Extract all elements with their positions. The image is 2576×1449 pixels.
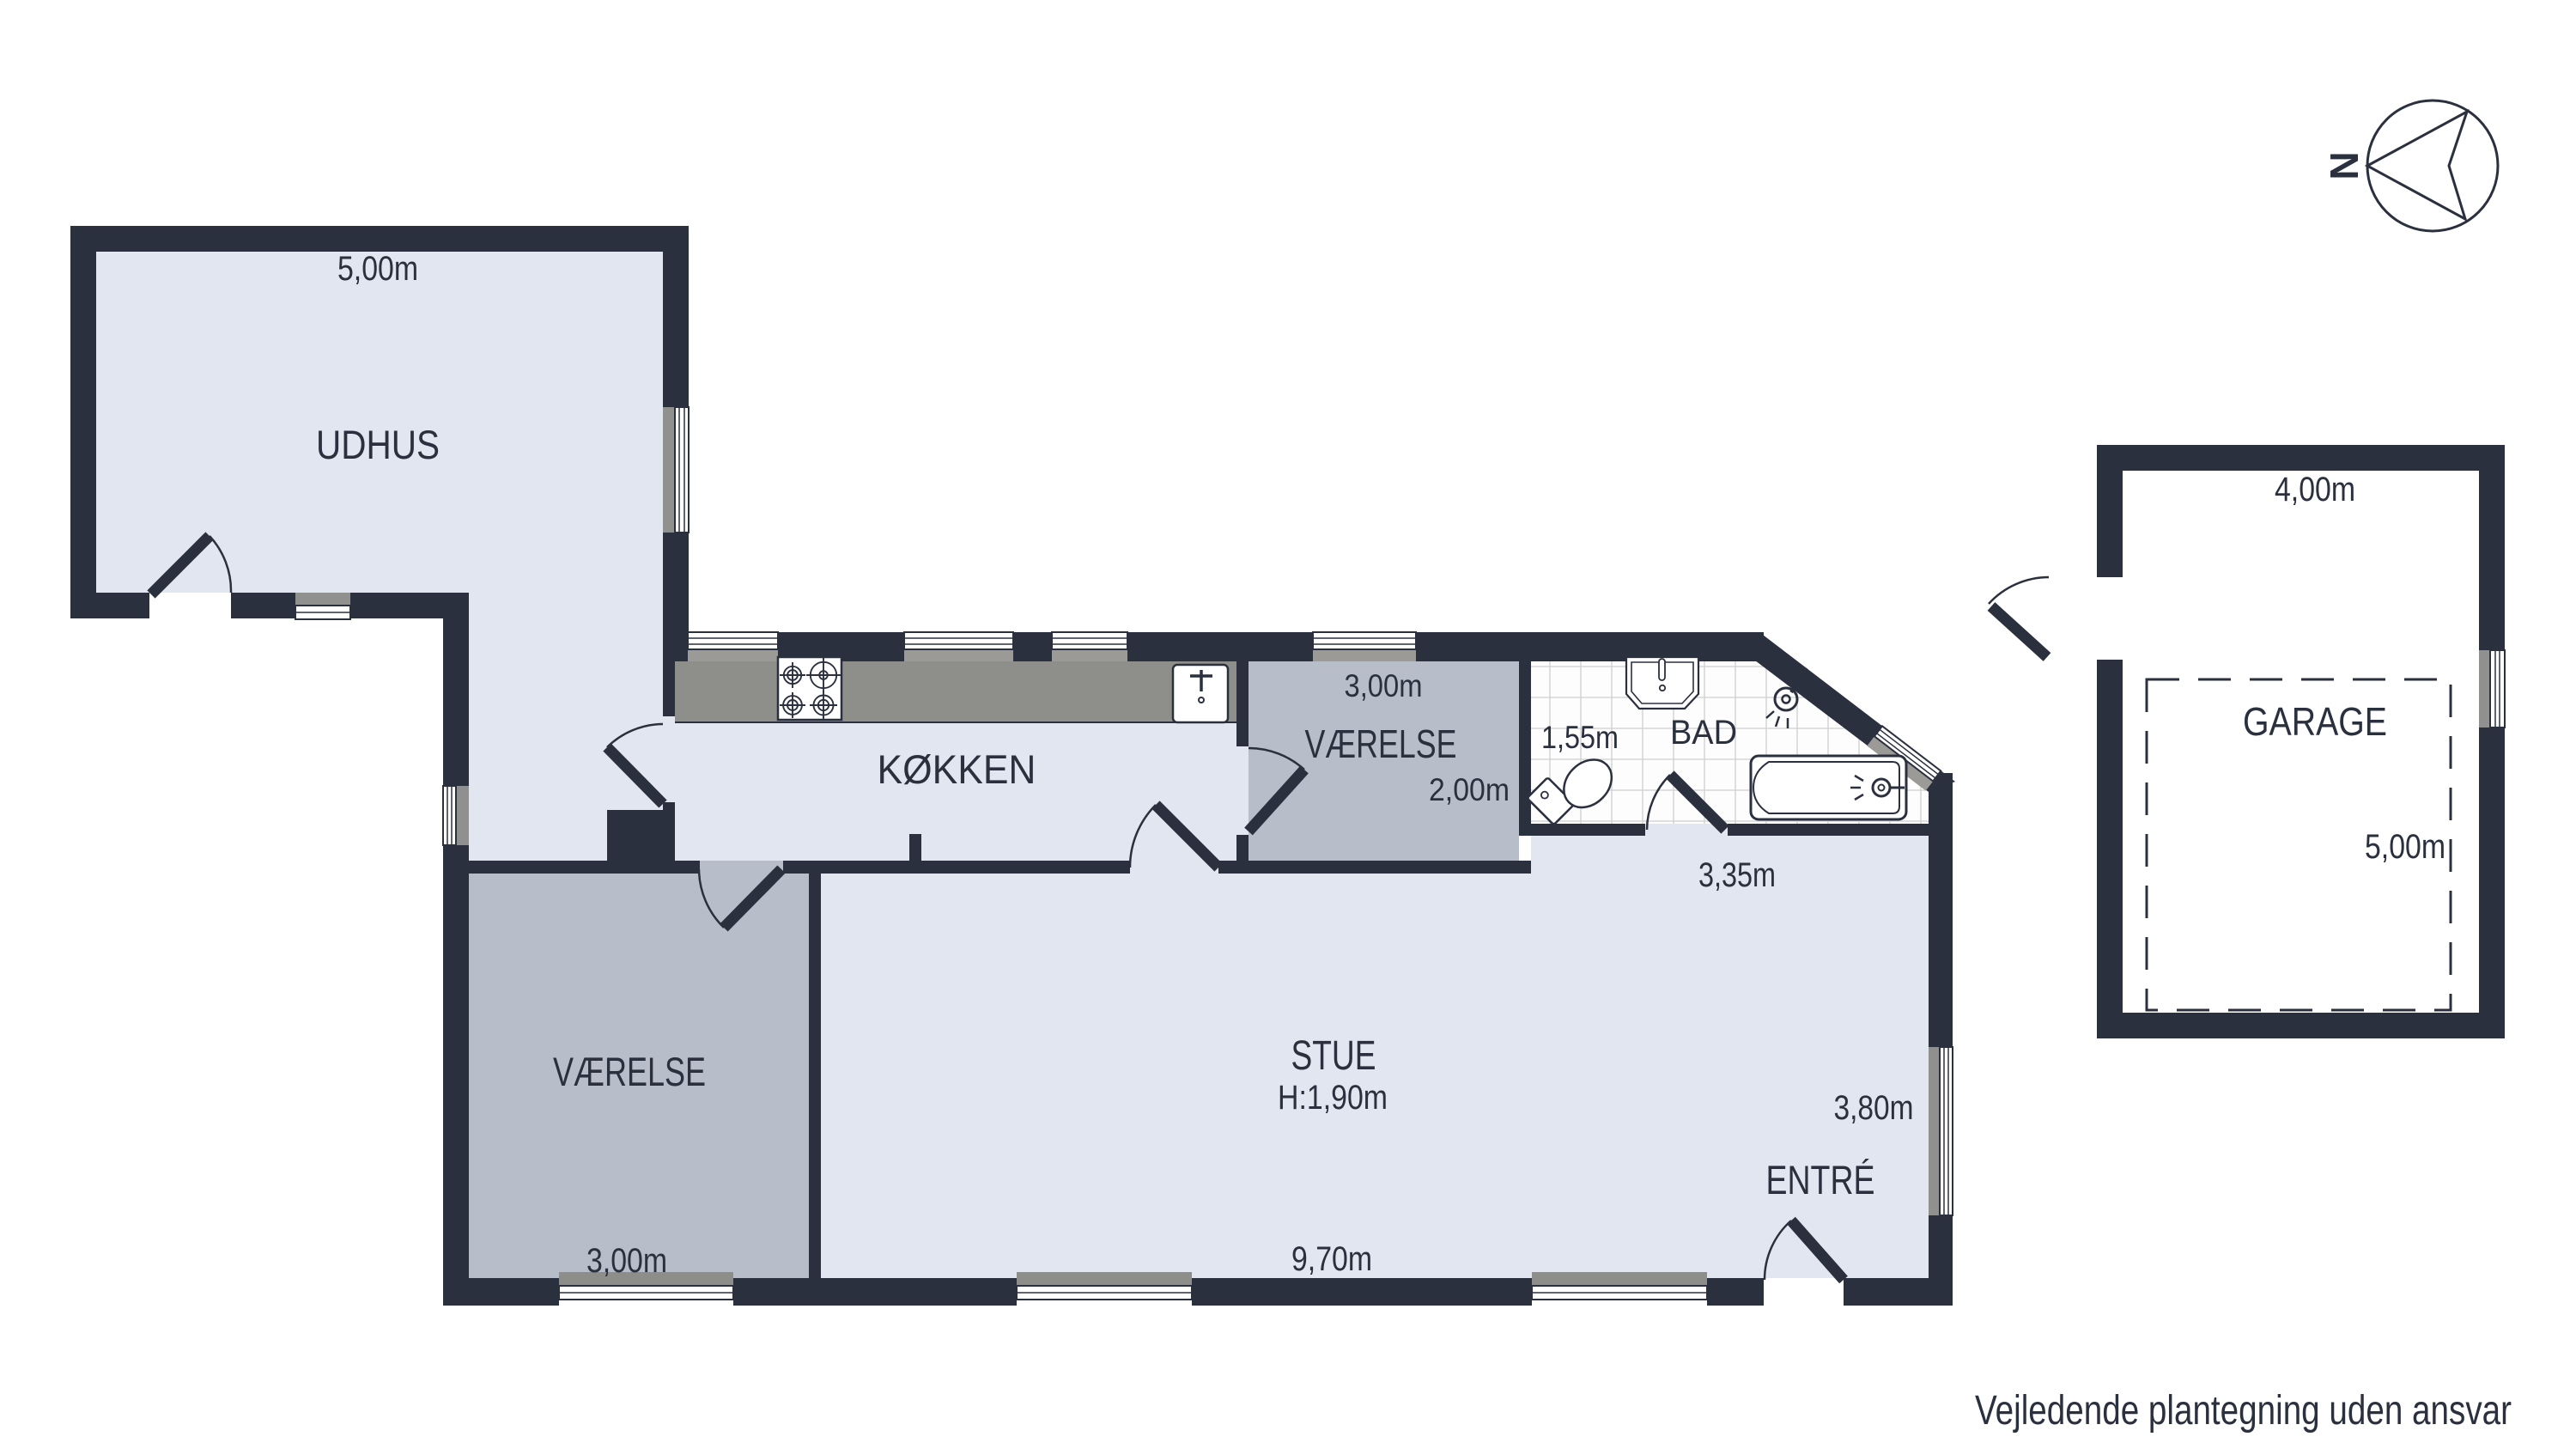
svg-text:1,55m: 1,55m bbox=[1541, 720, 1619, 755]
svg-text:N: N bbox=[2322, 151, 2366, 180]
svg-text:9,70m: 9,70m bbox=[1291, 1240, 1372, 1278]
svg-text:VÆRELSE: VÆRELSE bbox=[1305, 721, 1457, 766]
svg-text:GARAGE: GARAGE bbox=[2243, 699, 2387, 744]
svg-text:BAD: BAD bbox=[1670, 714, 1737, 752]
svg-text:5,00m: 5,00m bbox=[337, 250, 418, 288]
svg-text:KØKKEN: KØKKEN bbox=[878, 746, 1036, 792]
svg-text:STUE: STUE bbox=[1291, 1033, 1376, 1079]
svg-text:H:1,90m: H:1,90m bbox=[1278, 1079, 1388, 1117]
svg-text:ENTRÉ: ENTRÉ bbox=[1766, 1157, 1875, 1202]
svg-text:UDHUS: UDHUS bbox=[316, 422, 440, 467]
svg-text:3,00m: 3,00m bbox=[1345, 668, 1423, 703]
svg-text:5,00m: 5,00m bbox=[2365, 828, 2445, 866]
svg-text:4,00m: 4,00m bbox=[2275, 471, 2355, 508]
svg-text:2,00m: 2,00m bbox=[1429, 772, 1510, 807]
svg-text:3,80m: 3,80m bbox=[1834, 1089, 1914, 1127]
svg-text:VÆRELSE: VÆRELSE bbox=[553, 1049, 706, 1094]
svg-text:3,35m: 3,35m bbox=[1698, 856, 1776, 894]
svg-text:3,00m: 3,00m bbox=[586, 1242, 667, 1280]
svg-text:Vejledende plantegning uden an: Vejledende plantegning uden ansvar bbox=[1975, 1388, 2512, 1434]
